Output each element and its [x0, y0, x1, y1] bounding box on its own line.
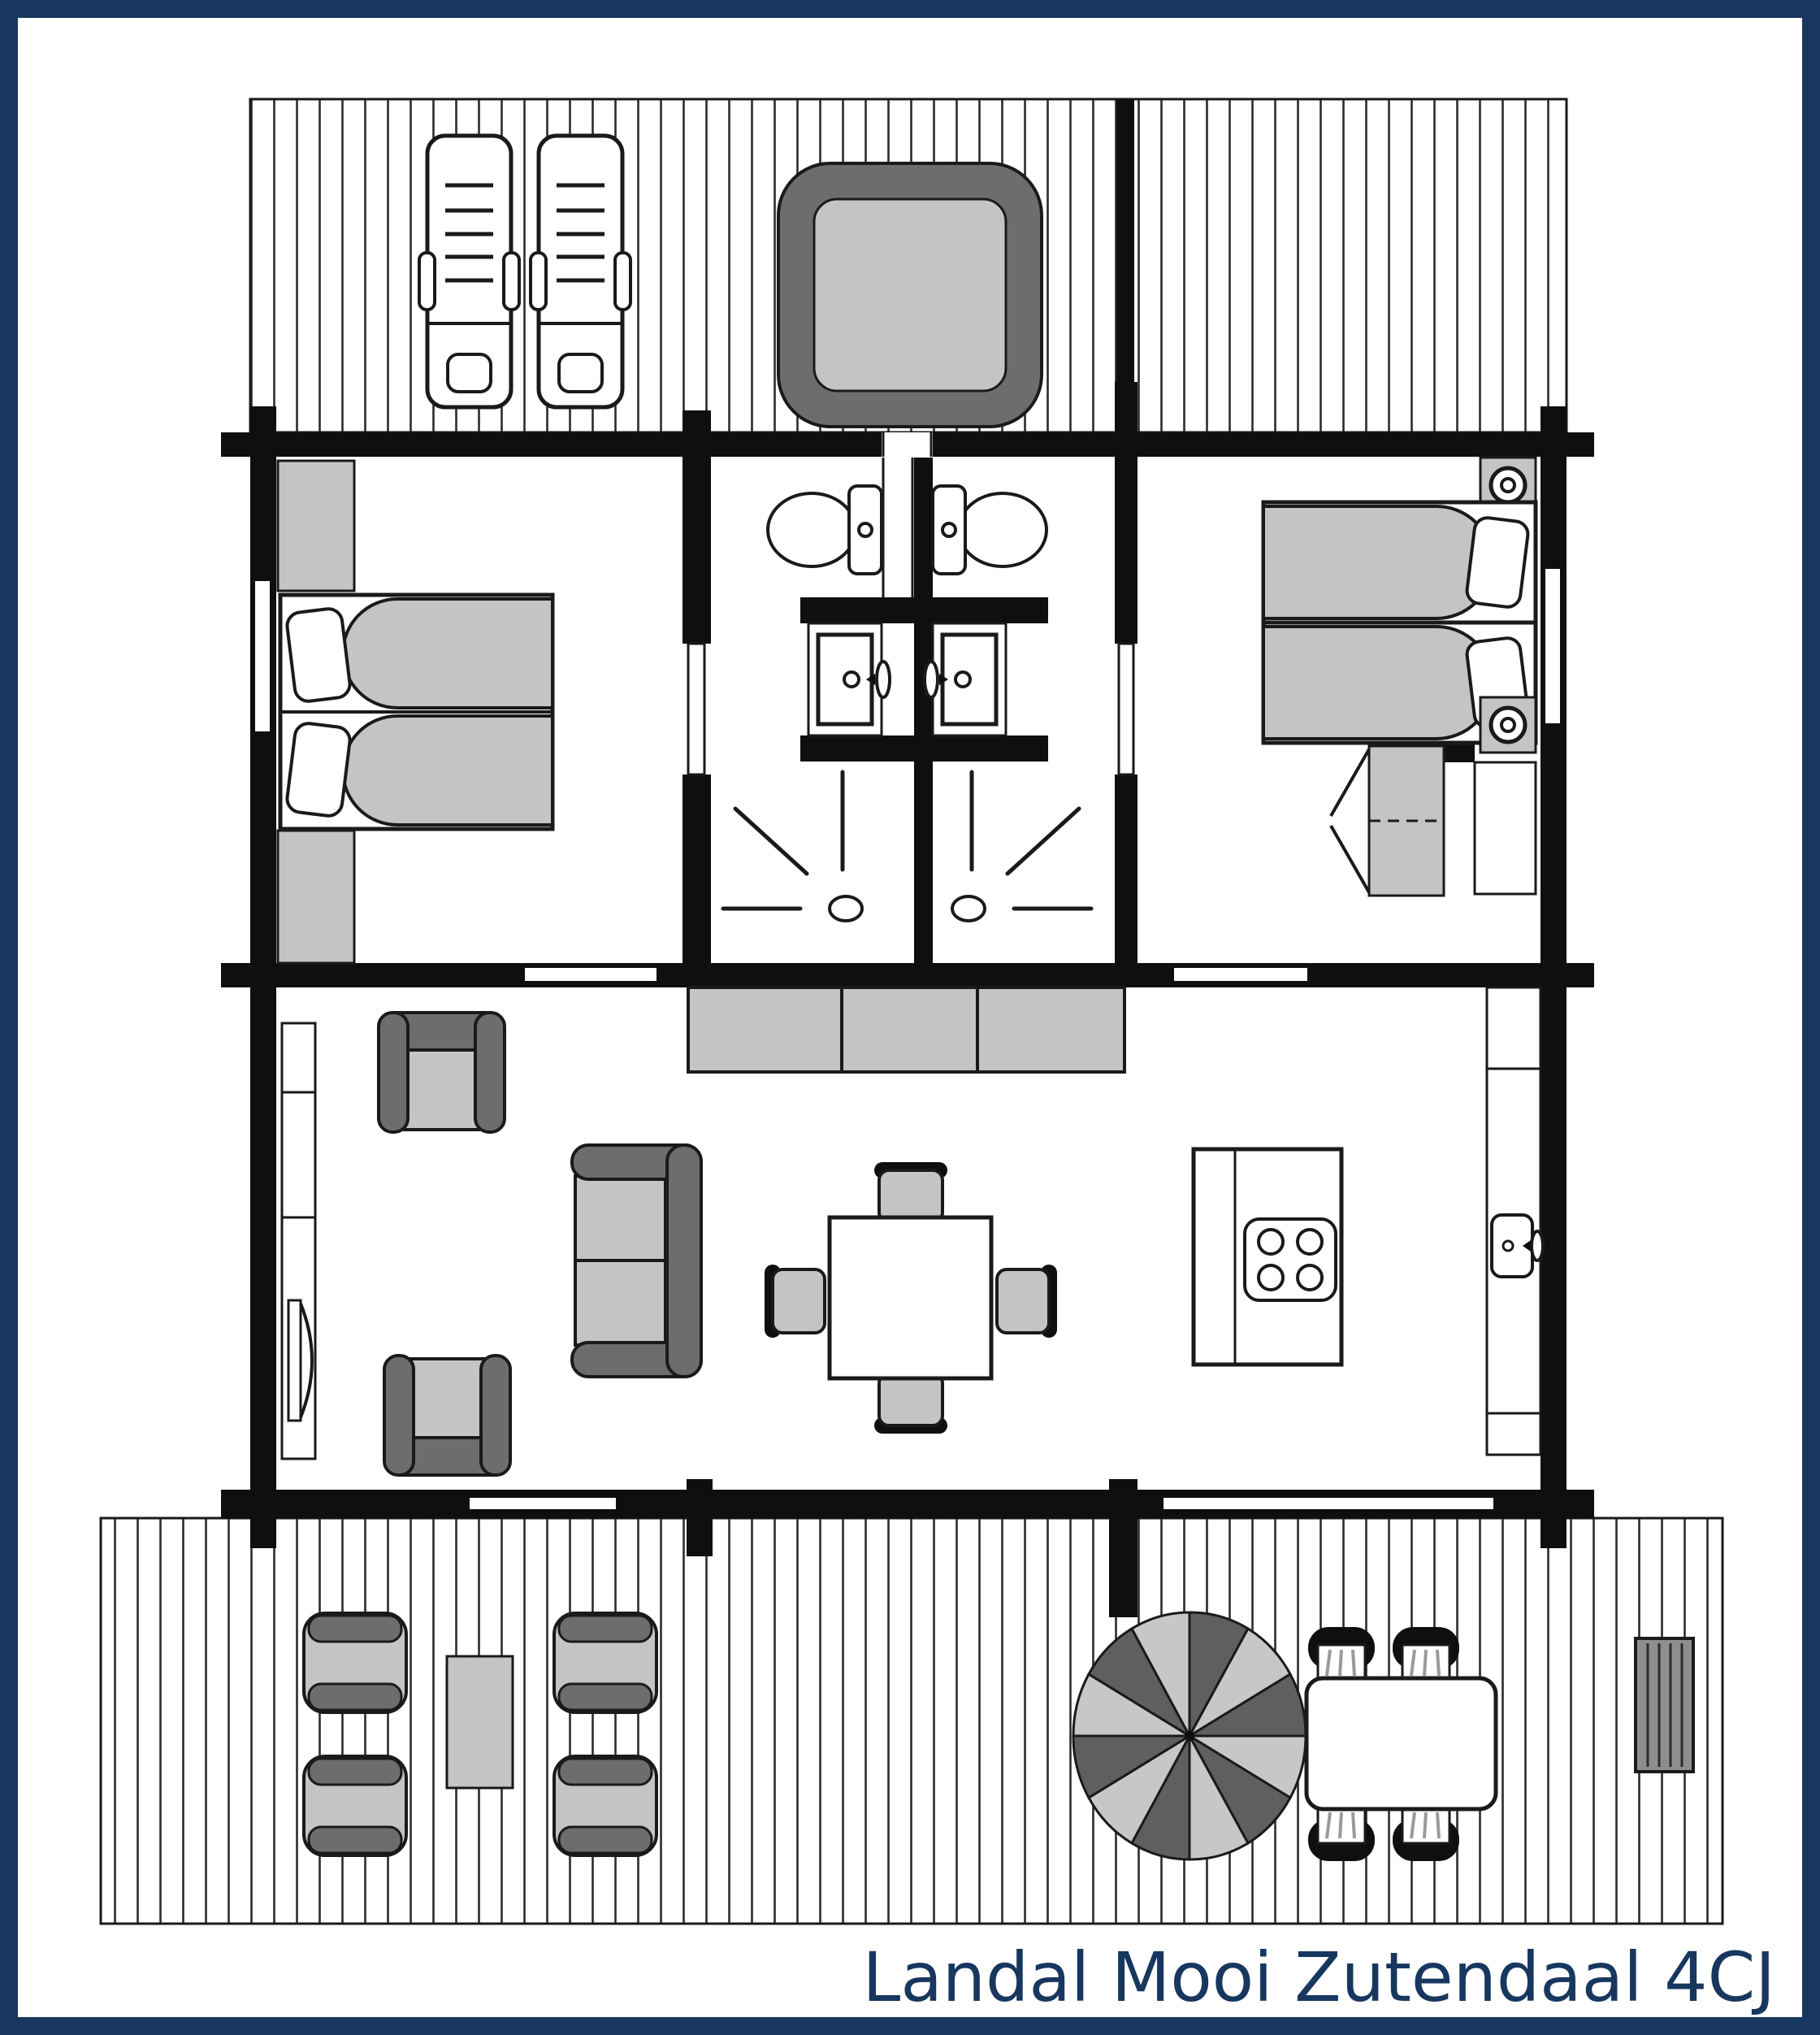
garden-chair [554, 1613, 656, 1712]
pillow-icon [286, 607, 352, 702]
sun-lounger [531, 136, 630, 407]
pillow-icon [286, 722, 352, 817]
lounger-armrest-icon [531, 253, 546, 310]
cupboard-row [688, 987, 1124, 1072]
wall-bathroom2-bedroom2 [1115, 382, 1137, 644]
door-bathroom-left [688, 644, 704, 775]
door-bedroom-right [1174, 968, 1307, 981]
bathroom-right [925, 486, 1091, 921]
shower-icon [723, 772, 862, 921]
dining-chair [765, 1265, 825, 1338]
kitchen-island [1194, 1149, 1341, 1365]
shower-icon [952, 772, 1091, 921]
bedroom-left [278, 461, 552, 963]
garden-table [1306, 1678, 1496, 1809]
top-terrace [250, 99, 1566, 432]
interior-wall-middle [221, 963, 1594, 987]
window-bedroom-right [1545, 569, 1560, 723]
living-room [282, 987, 1124, 1475]
wall-bedroom1-bathroom1 [682, 410, 711, 644]
lounger-armrest-icon [504, 253, 519, 310]
dining-chair [997, 1265, 1057, 1338]
door-bedroom-left [525, 968, 656, 981]
kitchen [1194, 987, 1543, 1455]
floor-plan-canvas: Landal Mooi Zutendaal 4CJ [0, 0, 1820, 2035]
wall-bathroom-divider [914, 458, 933, 987]
tv-icon [288, 1300, 301, 1421]
lounger-armrest-icon [419, 253, 435, 310]
garden-dining-chair [1308, 1627, 1375, 1681]
bathroom-left [723, 486, 890, 921]
garden-bench [1636, 1638, 1693, 1772]
wall-bathroom2-bedroom2 [1115, 775, 1137, 987]
niche-wall [800, 735, 1048, 761]
washbasin-icon [808, 623, 890, 735]
duvet-icon [1263, 627, 1493, 739]
niche-wall [800, 597, 1048, 623]
tv-sideboard [282, 1023, 315, 1459]
bottom-terrace [101, 1518, 1722, 1924]
exterior-wall-left [250, 406, 276, 1548]
pillow-icon [1466, 516, 1529, 608]
duvet-icon [343, 716, 552, 825]
washbasin-icon [925, 623, 1006, 735]
window-bedroom-left [255, 581, 270, 731]
hob-icon [1245, 1219, 1336, 1300]
garden-dining-chair [1308, 1807, 1375, 1861]
wardrobe [278, 461, 354, 591]
bedroom-right [1263, 458, 1536, 896]
wardrobe [278, 831, 354, 963]
entrance-opening [882, 432, 933, 457]
toilet-icon [933, 486, 1046, 574]
side-table [447, 1656, 513, 1788]
garden-dining-chair [1393, 1807, 1459, 1861]
wall-stub [687, 1479, 713, 1556]
parasol [1073, 1612, 1306, 1859]
lounger-cushion-icon [559, 354, 602, 392]
sun-lounger [419, 136, 519, 407]
armchair [379, 1013, 505, 1132]
nightstand [1480, 697, 1536, 753]
garden-chair [304, 1756, 406, 1855]
lounger-armrest-icon [615, 253, 630, 310]
sliding-door-living [470, 1498, 616, 1509]
kitchen-counter [1487, 987, 1543, 1455]
duvet-icon [343, 599, 552, 708]
sliding-door-kitchen [1163, 1498, 1493, 1509]
plan-title: Landal Mooi Zutendaal 4CJ [863, 1937, 1775, 2017]
shaft [882, 458, 914, 597]
duvet-icon [1263, 506, 1493, 618]
cabinet [1475, 762, 1536, 894]
dining-chair [874, 1162, 947, 1222]
hot-tub [778, 163, 1042, 427]
sofa [572, 1145, 701, 1377]
wall-stub [1109, 1479, 1137, 1617]
wall-bedroom1-bathroom1 [682, 775, 711, 987]
lounger-cushion-icon [448, 354, 491, 392]
garden-chair [304, 1613, 406, 1712]
single-bed [1263, 502, 1536, 623]
garden-dining-chair [1393, 1627, 1459, 1681]
door-bathroom-right [1119, 644, 1133, 775]
toilet-icon [768, 486, 882, 574]
armchair [384, 1356, 510, 1475]
dining-chair [874, 1373, 947, 1434]
wardrobe [1331, 746, 1444, 896]
garden-chair [554, 1756, 656, 1855]
double-bed [280, 595, 552, 829]
dining-table [830, 1217, 991, 1378]
